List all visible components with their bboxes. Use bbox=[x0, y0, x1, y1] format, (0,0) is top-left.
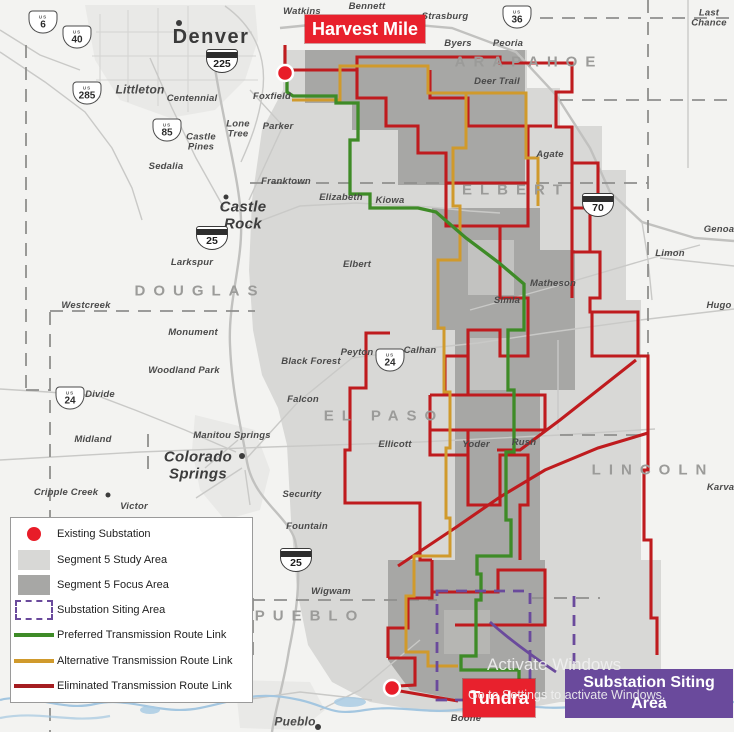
harvest-mile-callout: Harvest Mile bbox=[305, 15, 425, 43]
shield-number: 225 bbox=[213, 58, 231, 71]
shield-number: 36 bbox=[511, 14, 522, 25]
study-swatch-icon bbox=[18, 550, 50, 570]
shield-number: 25 bbox=[206, 235, 218, 248]
legend-swatch-study bbox=[11, 550, 57, 570]
legend-swatch-red-line bbox=[11, 684, 57, 688]
legend-item: Eliminated Transmission Route Link bbox=[11, 674, 252, 698]
legend-item-label: Existing Substation bbox=[57, 528, 151, 540]
siting-swatch-icon bbox=[15, 600, 53, 620]
shield-number: 285 bbox=[79, 90, 96, 101]
dot-swatch-icon bbox=[27, 527, 41, 541]
shield-number: 25 bbox=[290, 557, 302, 570]
legend-item: Preferred Transmission Route Link bbox=[11, 623, 252, 647]
green-line-swatch-icon bbox=[14, 633, 54, 637]
legend-swatch-siting bbox=[11, 600, 57, 620]
legend-item-label: Segment 5 Study Area bbox=[57, 554, 167, 566]
legend-item-label: Segment 5 Focus Area bbox=[57, 579, 169, 591]
shield-number: 24 bbox=[64, 395, 75, 406]
legend-swatch-green-line bbox=[11, 633, 57, 637]
legend-item-label: Alternative Transmission Route Link bbox=[57, 655, 232, 667]
legend-swatch-focus bbox=[11, 575, 57, 595]
legend-swatch-dot bbox=[11, 527, 57, 541]
shield-number: 70 bbox=[592, 202, 604, 215]
shield-number: 24 bbox=[384, 357, 395, 368]
legend-item: Alternative Transmission Route Link bbox=[11, 649, 252, 673]
legend-item-label: Eliminated Transmission Route Link bbox=[57, 680, 232, 692]
orange-line-swatch-icon bbox=[14, 659, 54, 663]
shield-number: 40 bbox=[71, 34, 82, 45]
red-line-swatch-icon bbox=[14, 684, 54, 688]
legend-item: Segment 5 Focus Area bbox=[11, 573, 252, 597]
tundra-callout: Tundra bbox=[463, 679, 535, 717]
tundra-substation-dot bbox=[384, 680, 400, 696]
harvest-mile-substation-dot bbox=[277, 65, 293, 81]
focus-swatch-icon bbox=[18, 575, 50, 595]
map-screenshot: ARAPAHOEELBERTDOUGLASEL PASOLINCOLNPUEBL… bbox=[0, 0, 734, 732]
legend-swatch-orange-line bbox=[11, 659, 57, 663]
legend-item-label: Substation Siting Area bbox=[57, 604, 165, 616]
legend-item: Existing Substation bbox=[11, 522, 252, 546]
shield-number: 85 bbox=[161, 127, 172, 138]
legend-item: Substation Siting Area bbox=[11, 598, 252, 622]
substation-siting-area-callout: Substation Siting Area bbox=[565, 669, 733, 718]
shield-number: 6 bbox=[40, 19, 46, 30]
legend-item-label: Preferred Transmission Route Link bbox=[57, 629, 226, 641]
legend: Existing SubstationSegment 5 Study AreaS… bbox=[10, 517, 253, 703]
legend-item: Segment 5 Study Area bbox=[11, 548, 252, 572]
